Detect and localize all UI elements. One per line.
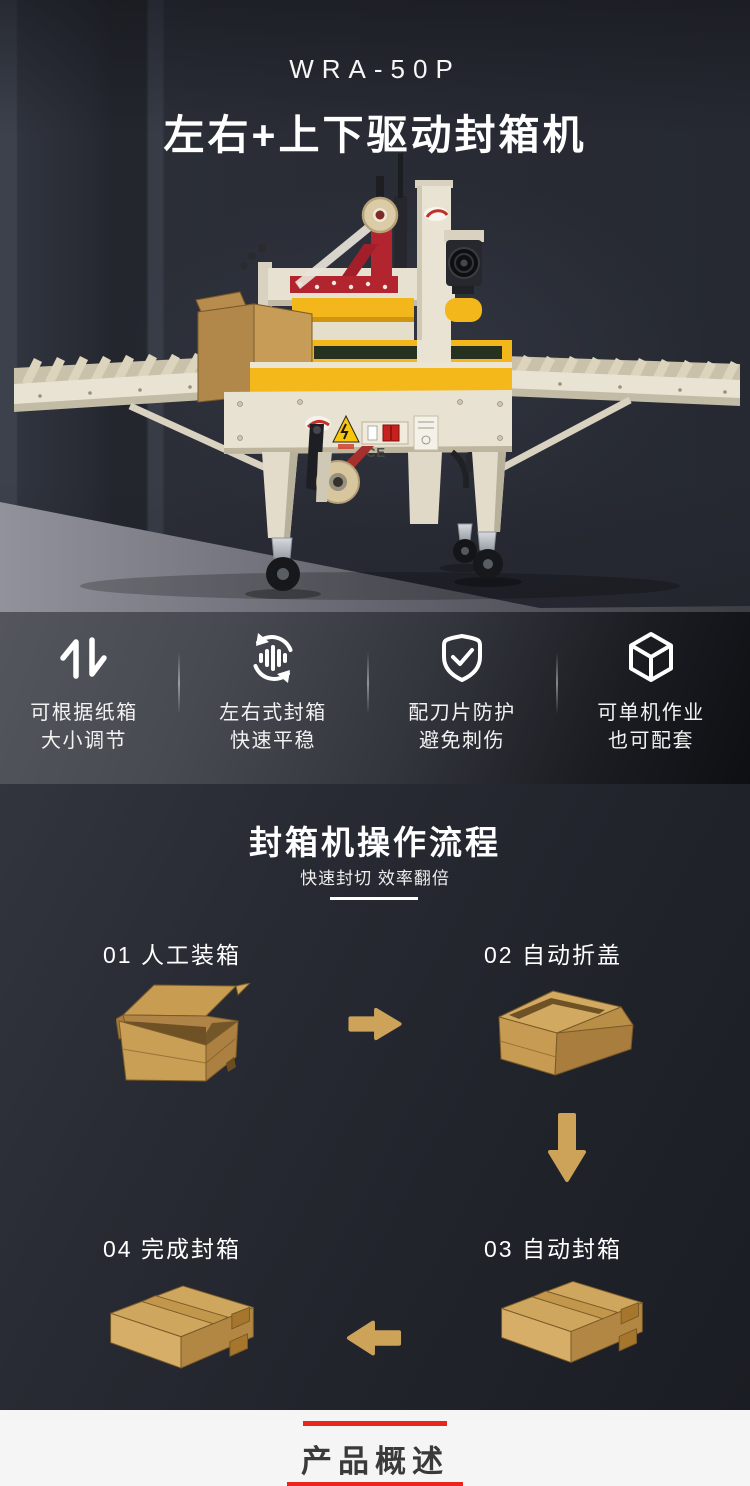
shield-check-icon <box>434 630 490 686</box>
feature-text: 左右式封箱 <box>179 696 367 725</box>
rotate-equalizer-icon <box>245 630 301 686</box>
features-section: 可根据纸箱 大小调节 <box>0 612 750 784</box>
cube-icon <box>623 630 679 686</box>
overview-section: 产品概述 <box>0 1410 750 1486</box>
title-underline <box>330 897 418 900</box>
motor <box>444 230 484 294</box>
step-label-2: 02 自动折盖 <box>484 936 622 970</box>
feature-text: 避免刺伤 <box>368 724 556 753</box>
caster-right <box>473 532 503 579</box>
arrow-down-icon <box>547 1112 587 1186</box>
swap-arrows-icon <box>56 630 112 686</box>
power-switch <box>362 422 408 444</box>
feature-text: 配刀片防护 <box>368 696 556 725</box>
machine-shadow <box>80 572 680 600</box>
overview-title: 产品概述 <box>0 1436 750 1481</box>
feature-adjustable: 可根据纸箱 大小调节 <box>0 612 178 784</box>
feature-text: 大小调节 <box>0 724 178 753</box>
red-accent-line <box>287 1482 463 1486</box>
feature-divider <box>178 652 180 714</box>
step-label-4: 04 完成封箱 <box>103 1230 241 1264</box>
caster-left <box>266 538 300 591</box>
process-subtitle: 快速封切 效率翻倍 <box>0 864 750 889</box>
folding-carton-icon <box>491 985 635 1077</box>
step-label-1: 01 人工装箱 <box>103 936 241 970</box>
product-detail-page: CE <box>0 0 750 1486</box>
conveyor-right <box>502 356 740 468</box>
process-section: 封箱机操作流程 快速封切 效率翻倍 01 人工装箱 02 自动折盖 04 完成封… <box>0 784 750 1410</box>
feature-text: 可单机作业 <box>557 696 745 725</box>
product-photo: CE <box>0 0 750 612</box>
feature-standalone: 可单机作业 也可配套 <box>557 612 745 784</box>
feature-divider <box>367 652 369 714</box>
feature-fast-stable: 左右式封箱 快速平稳 <box>179 612 367 784</box>
product-model: WRA-50P <box>0 54 750 85</box>
side-drive-belts <box>288 298 512 366</box>
page-title: 左右+上下驱动封箱机 <box>0 101 750 161</box>
sealed-carton-icon <box>490 1277 652 1365</box>
red-accent-bar <box>303 1421 447 1426</box>
feature-text: 可根据纸箱 <box>0 696 178 725</box>
arrow-left-icon <box>346 1311 402 1365</box>
arrow-right-icon <box>347 1006 403 1042</box>
step-label-3: 03 自动封箱 <box>484 1230 622 1264</box>
feature-text: 快速平稳 <box>179 724 367 753</box>
feature-text: 也可配套 <box>557 724 745 753</box>
sealed-carton-icon <box>98 1282 264 1370</box>
hero-section: CE <box>0 0 750 612</box>
feature-blade-guard: 配刀片防护 避免刺伤 <box>368 612 556 784</box>
open-carton-icon <box>116 983 252 1087</box>
caster-center <box>453 524 477 563</box>
tape-roll-top <box>363 176 397 232</box>
feature-divider <box>556 652 558 714</box>
process-title: 封箱机操作流程 <box>0 816 750 864</box>
